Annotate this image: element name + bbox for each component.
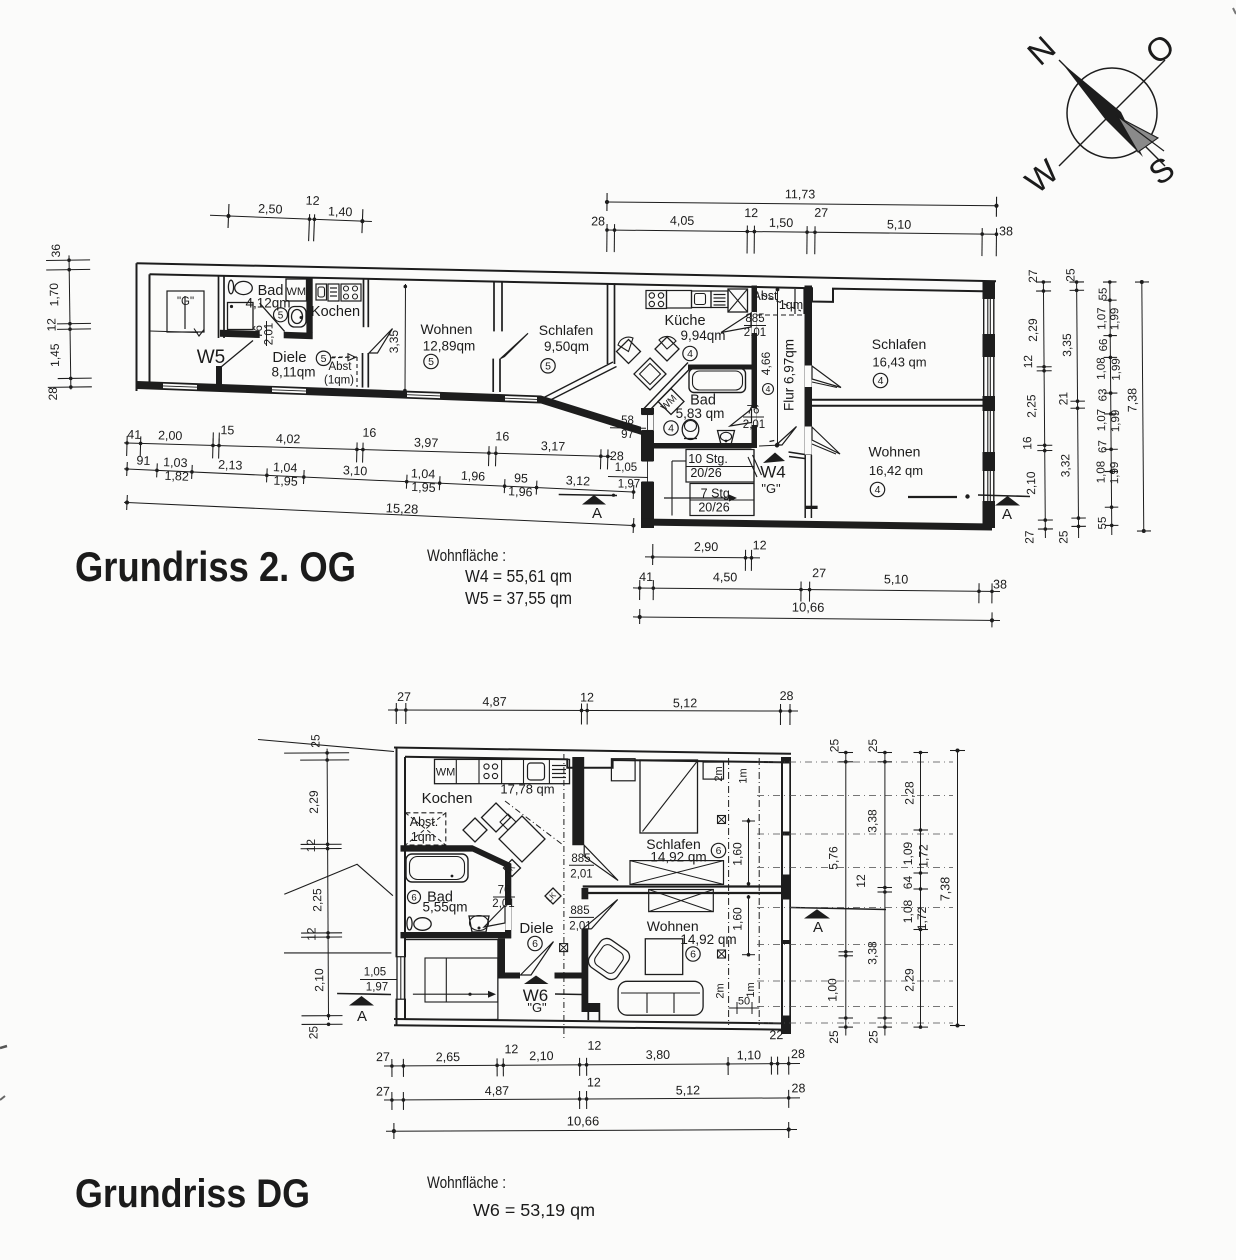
svg-text:1,07: 1,07 [1096,307,1108,329]
svg-text:Diele: Diele [519,920,553,937]
svg-text:W5: W5 [197,347,226,368]
svg-text:Grundriss DG: Grundriss DG [75,1172,310,1216]
svg-text:95: 95 [514,471,529,486]
svg-text:20/26: 20/26 [690,466,721,480]
svg-text:5,55qm: 5,55qm [422,900,467,915]
svg-text:1,08: 1,08 [901,899,915,923]
svg-text:3,12: 3,12 [565,473,590,488]
svg-text:55: 55 [1097,517,1109,530]
svg-text:91: 91 [136,453,151,468]
svg-text:1,08: 1,08 [1096,357,1108,379]
svg-text:885: 885 [745,313,764,325]
svg-text:3,10: 3,10 [343,463,368,478]
svg-text:25: 25 [1056,530,1070,544]
svg-text:6: 6 [690,949,696,961]
svg-text:12: 12 [580,690,594,704]
svg-text:1,45: 1,45 [48,343,62,367]
svg-text:6: 6 [716,845,722,857]
svg-text:1qm: 1qm [779,298,803,312]
svg-text:1,96: 1,96 [461,469,486,484]
svg-text:27: 27 [1026,269,1040,283]
svg-text:1,60: 1,60 [731,842,745,866]
svg-text:2,29: 2,29 [903,968,917,992]
svg-text:25: 25 [1063,268,1077,282]
svg-text:Schlafen: Schlafen [539,322,593,338]
svg-text:WM: WM [436,767,456,779]
svg-text:2m: 2m [713,766,725,781]
svg-text:28: 28 [46,387,60,401]
svg-text:12: 12 [587,1075,601,1089]
svg-text:2,13: 2,13 [218,458,243,473]
svg-text:Wohnen: Wohnen [869,444,921,460]
svg-text:5,83 qm: 5,83 qm [676,406,725,421]
svg-text:16: 16 [495,429,509,443]
svg-text:12: 12 [44,318,58,332]
svg-text:58: 58 [621,415,634,427]
svg-text:1,95: 1,95 [411,480,436,495]
svg-text:12: 12 [304,839,318,853]
svg-text:A: A [813,919,823,936]
svg-text:12: 12 [1021,355,1035,369]
svg-text:Schlafen: Schlafen [872,336,926,352]
svg-text:1,99: 1,99 [1111,358,1123,380]
svg-text:1,00: 1,00 [826,978,840,1002]
svg-text:2,01: 2,01 [264,323,276,345]
svg-text:4: 4 [878,375,884,387]
svg-text:1,95: 1,95 [273,474,298,489]
svg-text:2,65: 2,65 [436,1050,460,1064]
svg-text:36: 36 [49,244,63,258]
svg-text:1,70: 1,70 [47,283,61,307]
svg-text:3,35: 3,35 [1060,333,1074,357]
svg-text:W4 = 55,61 qm: W4 = 55,61 qm [465,566,572,586]
svg-text:2,00: 2,00 [158,428,183,443]
svg-text:16,42 qm: 16,42 qm [869,463,923,478]
svg-text:4,66: 4,66 [759,351,773,375]
svg-text:9,50qm: 9,50qm [544,339,589,354]
svg-text:25: 25 [827,1030,841,1044]
svg-text:2,10: 2,10 [312,968,326,992]
svg-text:1,10: 1,10 [737,1048,761,1062]
svg-text:1,09: 1,09 [901,841,915,865]
svg-text:4,02: 4,02 [276,432,301,447]
svg-text:76: 76 [498,885,511,897]
svg-text:28: 28 [791,1081,805,1095]
svg-text:9,94qm: 9,94qm [680,328,725,343]
svg-text:3,32: 3,32 [1058,454,1072,478]
svg-text:Wohnfläche :: Wohnfläche : [427,547,506,565]
svg-text:5,76: 5,76 [827,846,841,870]
svg-text:5,10: 5,10 [884,572,909,586]
svg-text:4,87: 4,87 [482,695,506,709]
svg-text:21: 21 [1056,392,1070,406]
svg-text:12: 12 [753,538,767,552]
svg-text:5,12: 5,12 [673,696,697,710]
svg-text:16: 16 [362,426,376,440]
svg-text:W5 = 37,55 qm: W5 = 37,55 qm [465,588,572,608]
svg-text:3,35: 3,35 [387,330,401,354]
svg-text:1,72: 1,72 [915,906,929,930]
svg-text:2,10: 2,10 [1024,471,1038,495]
svg-text:Abst: Abst [752,289,778,303]
svg-text:2,50: 2,50 [258,202,283,217]
svg-text:4: 4 [687,348,693,360]
svg-text:Flur 6,97qm: Flur 6,97qm [782,339,797,411]
svg-text:A: A [592,505,602,522]
svg-text:27: 27 [397,690,411,704]
svg-text:2m: 2m [715,983,727,998]
svg-text:2,10: 2,10 [529,1049,553,1063]
svg-text:4,05: 4,05 [670,214,695,228]
svg-text:2,28: 2,28 [903,781,917,805]
svg-text:3,38: 3,38 [866,941,880,965]
svg-text:5: 5 [428,356,434,368]
svg-text:5: 5 [321,353,327,365]
svg-text:885: 885 [571,853,590,865]
svg-text:25: 25 [306,1026,320,1040]
svg-text:27: 27 [376,1050,390,1064]
svg-text:4,87: 4,87 [485,1084,509,1098]
svg-text:5: 5 [278,311,284,322]
svg-text:63: 63 [1097,389,1109,402]
svg-text:6: 6 [411,893,416,904]
svg-text:Abst: Abst [328,361,352,373]
svg-text:25: 25 [308,734,322,748]
svg-text:97: 97 [621,429,634,441]
svg-text:10,66: 10,66 [567,1114,600,1129]
svg-text:38: 38 [999,224,1013,238]
svg-text:1,99: 1,99 [1110,410,1122,432]
svg-text:12: 12 [854,874,868,888]
svg-text:2,25: 2,25 [310,888,324,912]
svg-text:38: 38 [993,577,1007,591]
svg-text:27: 27 [1022,530,1036,544]
svg-text:7,38: 7,38 [1125,388,1139,412]
svg-text:Abst.: Abst. [410,815,439,829]
svg-text:1m: 1m [738,768,750,783]
svg-text:5,10: 5,10 [887,218,912,232]
svg-text:25: 25 [866,739,880,753]
svg-text:W6 = 53,19 qm: W6 = 53,19 qm [473,1200,595,1220]
svg-text:1,99: 1,99 [1109,308,1121,330]
svg-text:28: 28 [780,689,794,703]
svg-text:3,80: 3,80 [646,1048,670,1062]
svg-text:3,38: 3,38 [866,809,880,833]
svg-text:17,78 qm: 17,78 qm [500,782,554,797]
svg-text:41: 41 [639,570,653,584]
svg-text:3,97: 3,97 [414,436,439,451]
svg-text:3,17: 3,17 [541,439,566,454]
svg-text:27: 27 [376,1085,390,1099]
svg-text:50: 50 [738,996,750,1008]
svg-text:W4: W4 [760,463,786,482]
svg-text:12: 12 [504,1042,518,1056]
svg-text:A: A [357,1008,367,1025]
svg-text:2,01: 2,01 [743,419,765,431]
svg-text:4: 4 [668,423,674,435]
svg-text:8,11qm: 8,11qm [271,365,315,380]
svg-text:28: 28 [610,449,624,463]
svg-text:15,28: 15,28 [385,500,418,516]
svg-text:12,89qm: 12,89qm [423,339,476,354]
svg-text:"G": "G" [527,1000,547,1015]
svg-text:2,90: 2,90 [694,540,718,554]
svg-text:67: 67 [1097,440,1109,453]
svg-text:66: 66 [1098,339,1110,352]
svg-text:A: A [1002,506,1012,523]
svg-text:Wohnen: Wohnen [421,321,473,337]
svg-text:Küche: Küche [664,313,705,329]
svg-text:28: 28 [591,214,605,228]
svg-text:(1qm): (1qm) [324,375,354,387]
svg-text:15: 15 [220,423,234,437]
svg-text:11,73: 11,73 [785,187,816,201]
svg-text:28: 28 [791,1047,805,1061]
svg-text:25: 25 [828,739,842,753]
svg-text:1,82: 1,82 [164,469,189,484]
svg-text:7,38: 7,38 [939,877,953,901]
svg-text:2,01: 2,01 [492,898,514,910]
svg-text:12: 12 [587,1039,601,1053]
svg-text:27: 27 [812,566,826,580]
svg-text:"G": "G" [177,296,194,308]
svg-text:1,07: 1,07 [1096,409,1108,431]
svg-text:27: 27 [814,206,828,220]
svg-text:Wohnfläche :: Wohnfläche : [427,1174,506,1192]
svg-text:2,29: 2,29 [1026,318,1040,342]
svg-text:Kochen: Kochen [311,304,360,320]
svg-text:5,12: 5,12 [676,1083,700,1097]
svg-text:14,92 qm: 14,92 qm [650,850,706,865]
svg-text:2,01: 2,01 [570,869,592,881]
svg-text:1qm: 1qm [411,830,435,844]
svg-text:16,43 qm: 16,43 qm [872,355,926,370]
svg-text:41: 41 [127,428,141,442]
svg-text:885: 885 [570,905,589,917]
svg-text:1,96: 1,96 [508,484,533,499]
svg-text:1,40: 1,40 [328,204,353,219]
svg-text:4,50: 4,50 [713,570,738,584]
svg-text:1,05: 1,05 [615,462,637,474]
svg-text:1,97: 1,97 [618,479,640,491]
svg-text:4: 4 [766,384,771,394]
svg-text:4: 4 [875,484,881,496]
svg-text:1,97: 1,97 [366,982,388,994]
svg-text:2,29: 2,29 [307,790,321,814]
svg-text:64: 64 [901,876,915,890]
svg-text:1,60: 1,60 [731,907,745,931]
svg-text:2,01: 2,01 [569,921,591,933]
svg-text:Kochen: Kochen [422,790,473,807]
svg-text:1,72: 1,72 [917,844,931,868]
svg-text:20/26: 20/26 [698,501,729,515]
svg-text:12: 12 [304,927,318,941]
svg-text:12: 12 [305,193,319,208]
svg-text:Diele: Diele [272,349,306,366]
svg-text:6: 6 [532,938,538,950]
svg-text:55: 55 [1098,288,1110,301]
svg-text:"G": "G" [761,481,781,496]
svg-text:16: 16 [1020,436,1034,450]
svg-text:12: 12 [744,206,758,220]
svg-text:25: 25 [867,1030,881,1044]
svg-text:10 Stg.: 10 Stg. [688,452,728,466]
svg-text:5: 5 [545,361,551,373]
svg-text:Grundriss 2. OG: Grundriss 2. OG [75,543,356,590]
svg-text:1,05: 1,05 [364,967,386,979]
svg-text:1,08: 1,08 [1095,461,1107,483]
svg-text:2,25: 2,25 [1024,394,1038,418]
svg-text:10,66: 10,66 [792,599,825,614]
svg-text:7 Stg.: 7 Stg. [701,487,734,501]
svg-text:1,50: 1,50 [769,216,794,230]
svg-text:1,99: 1,99 [1109,462,1121,484]
svg-text:76: 76 [747,405,760,417]
svg-text:22: 22 [769,1028,783,1042]
svg-text:2,01: 2,01 [744,327,766,339]
